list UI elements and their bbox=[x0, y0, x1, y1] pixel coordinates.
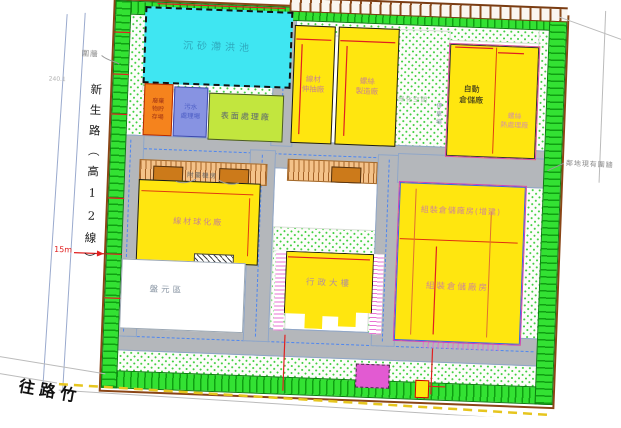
site-plan-page: { "plan": { "road_left": { "name": "新生路（… bbox=[0, 0, 621, 410]
site-plan-drawing: 沉砂滯洪池 廢棄 物貯 存場 污水 處理場 表面處理廠 線材 伸抽廠 螺絲 製造… bbox=[0, 0, 621, 421]
red-dimension-lines bbox=[69, 1, 525, 400]
parking-area-label: 停車場 bbox=[433, 102, 443, 126]
road-edge-lines bbox=[43, 12, 85, 391]
survey-mark-label: 240.1 bbox=[49, 75, 66, 83]
neighbor-fence-annotation: 鄰地現有圍牆 bbox=[566, 158, 614, 170]
leader-lines bbox=[97, 56, 567, 198]
road-center-dashes-yellow bbox=[58, 384, 550, 415]
fence-annotation: 圍牆 bbox=[81, 48, 98, 60]
green-space-label: 綠化空間 bbox=[398, 93, 428, 104]
road-width-label: 15m bbox=[54, 245, 72, 255]
